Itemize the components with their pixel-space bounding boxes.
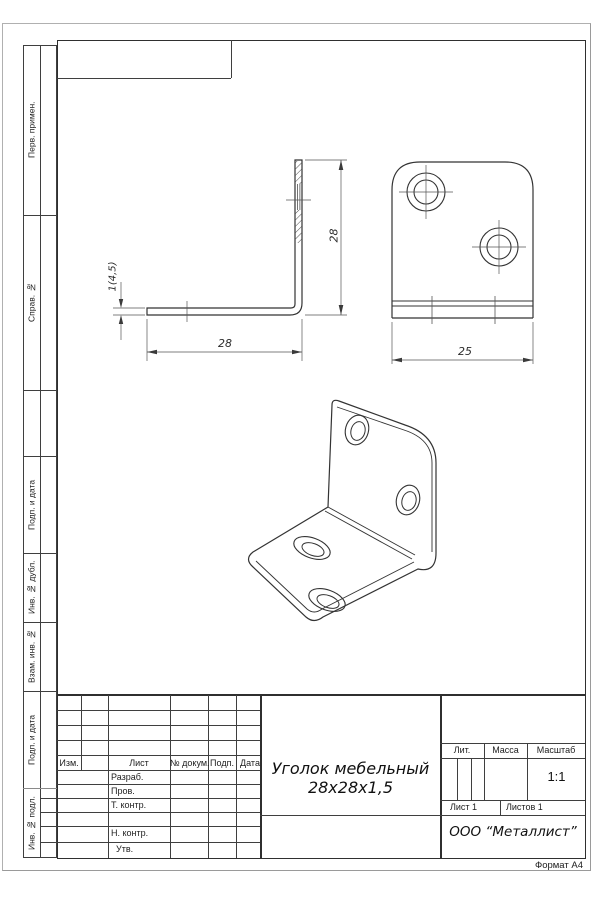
part-title-line1: Уголок мебельный [262, 759, 439, 778]
tb-role-prov: Пров. [111, 786, 135, 797]
scale-value: 1:1 [528, 769, 585, 784]
tb-role-tkontr: Т. контр. [111, 800, 146, 811]
tb-mass-label: Масса [484, 745, 527, 756]
tb-header-podp: Подп. [208, 758, 236, 769]
strip-label-sprav-no: Справ. № [23, 215, 40, 390]
hole-3d [300, 540, 326, 559]
tb-line [260, 815, 585, 816]
section-hatch-lower [296, 210, 302, 243]
tb-line [440, 800, 585, 801]
tb-line [440, 758, 585, 759]
tb-row-line [57, 755, 260, 756]
left-strip-divider [40, 45, 41, 858]
tb-line [170, 695, 171, 858]
tb-line [208, 695, 209, 858]
strip-label-perv-primen: Перв. примен. [23, 45, 40, 215]
isometric-view [235, 390, 465, 650]
dim-text-side-height: 28 [328, 222, 341, 250]
tb-scale-label: Масштаб [527, 745, 585, 756]
tb-row-line [57, 725, 260, 726]
tb-row-line [40, 842, 260, 843]
strip-label-podp-i-data-2: Подп. и дата [23, 691, 40, 788]
countersink-hole-3d [393, 483, 423, 518]
tb-line [108, 695, 109, 858]
strip-line [23, 390, 57, 391]
strip-label-vzam-inv-no: Взам. инв. № [23, 622, 40, 691]
tb-header-data: Дата [236, 758, 264, 769]
strip-label-inv-no-podl: Инв. № подл. [23, 788, 40, 858]
designation-box-line [57, 78, 231, 79]
tb-line [500, 800, 501, 815]
tb-header-dokum: № докум. [170, 758, 208, 769]
tb-lit-label: Лит. [440, 745, 484, 756]
tb-header-list: Лист [108, 758, 170, 769]
tb-line [81, 695, 82, 770]
tb-role-razrab: Разраб. [111, 772, 143, 783]
strip-label-inv-no-dubl: Инв. № дубл. [23, 553, 40, 622]
tb-row-line [40, 798, 260, 799]
title-block-top [57, 694, 585, 696]
section-hatch-upper [296, 161, 302, 184]
hole-3d [349, 420, 367, 442]
drawing-sheet-a4: Перв. примен. Справ. № Подп. и дата Инв.… [0, 0, 600, 900]
dim-text-front-width: 25 [445, 345, 485, 358]
bracket-profile-outline [147, 160, 302, 315]
part-title-line2: 28х28х1,5 [262, 778, 439, 797]
bend-line [325, 511, 412, 559]
tb-row-line [40, 826, 260, 827]
part-title: Уголок мебельный 28х28х1,5 [262, 759, 439, 797]
tb-sheets-info: Листов 1 [506, 802, 543, 813]
format-label: Формат А4 [480, 860, 583, 871]
tb-lit-subline [471, 758, 472, 800]
tb-sheet-info: Лист 1 [450, 802, 477, 813]
tb-role-nkontr: Н. контр. [111, 828, 148, 839]
dim-text-side-width: 28 [205, 337, 245, 350]
tb-role-utv: Утв. [116, 844, 133, 855]
tb-header-izm: Изм. [57, 758, 81, 769]
designation-box-line [231, 40, 232, 78]
plate-outline [392, 162, 533, 318]
front-view [380, 150, 580, 372]
countersink-hole-3d [306, 584, 349, 616]
strip-label-podp-i-data-1: Подп. и дата [23, 456, 40, 553]
tb-row-line [40, 812, 260, 813]
tb-lit-subline [457, 758, 458, 800]
tb-row-line [57, 784, 260, 785]
hole-3d [400, 490, 418, 512]
countersink-hole-3d [291, 532, 334, 564]
tb-line [236, 695, 237, 858]
company-name: ООО “Металлист” [441, 824, 585, 840]
tb-line [440, 743, 585, 744]
tb-row-line [57, 770, 260, 771]
edge-thickness-line [256, 561, 414, 612]
dim-text-thickness: 1(4,5) [108, 256, 119, 298]
tb-row-line [57, 740, 260, 741]
tb-row-line [57, 710, 260, 711]
